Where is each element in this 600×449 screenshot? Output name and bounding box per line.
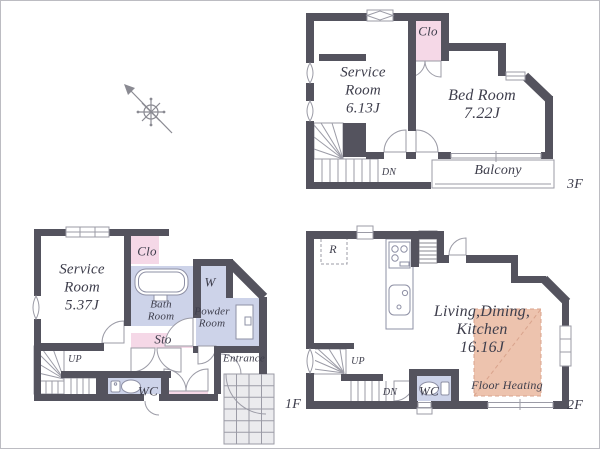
- diagonal-wall-3f: [525, 76, 550, 100]
- room-label-service-1f-area: 5.37J: [65, 299, 99, 314]
- room-label-ldk-line2: Kitchen: [456, 322, 507, 338]
- room-label-ldk-line1: Living,Dining,: [434, 304, 530, 320]
- floorplan-canvas: Service Room 6.13J Clo Bed Room 7.22J DN…: [0, 0, 600, 449]
- stairs-1f: [34, 346, 96, 394]
- room-label-bath-line2: Room: [148, 312, 174, 323]
- room-label-service-1f-line1: Service: [59, 263, 105, 278]
- balcony-label: Balcony: [474, 164, 521, 178]
- room-label-service-3f-line2: Room: [345, 84, 381, 99]
- stove-icon: [389, 242, 410, 268]
- room-label-powder-line1: Powder: [194, 307, 229, 318]
- entrance-label: Entrance: [223, 354, 265, 365]
- room-label-bath-line1: Bath: [150, 300, 172, 311]
- floor-2f-plan: [301, 221, 596, 449]
- sink-icon: [389, 285, 410, 315]
- compass-icon: [121, 81, 179, 139]
- wc-label-1f: WC: [138, 385, 158, 398]
- room-label-bedroom-line1: Bed Room: [448, 88, 516, 104]
- washer-label: W: [204, 276, 215, 289]
- stairs-down-label-3f: DN: [382, 168, 396, 178]
- floor-label-1f: 1F: [285, 398, 301, 412]
- toilet-icon-1f: [111, 380, 141, 393]
- room-label-closet-3f: Clo: [418, 25, 437, 38]
- room-label-closet-1f: Clo: [137, 245, 156, 258]
- diagonal-wall-1f: [230, 263, 264, 297]
- room-label-service-3f-area: 6.13J: [346, 102, 380, 117]
- room-label-powder-line2: Room: [199, 319, 225, 330]
- kitchen-counter: [386, 239, 413, 329]
- entrance-porch-tiles: [224, 374, 274, 444]
- room-label-service-3f-line1: Service: [340, 66, 386, 81]
- diagonal-wall-2f: [544, 279, 567, 302]
- floor-label-2f: 2F: [567, 399, 583, 413]
- stairs-up-label-2f: UP: [351, 357, 365, 367]
- vanity-cabinet-icon: [236, 305, 253, 339]
- floor-label-3f: 3F: [567, 178, 583, 192]
- storage-label: Sto: [154, 333, 171, 346]
- stairs-down-label-2f: DN: [383, 388, 397, 398]
- room-label-service-1f-line2: Room: [64, 281, 100, 296]
- wc-label-2f: WC: [419, 385, 439, 398]
- refrigerator-label: R: [329, 243, 337, 255]
- floor-heating-label: Floor Heating: [471, 379, 543, 391]
- room-label-ldk-area: 16.16J: [460, 340, 504, 356]
- stairs-up-label-1f: UP: [68, 355, 82, 365]
- room-label-bedroom-area: 7.22J: [464, 106, 500, 122]
